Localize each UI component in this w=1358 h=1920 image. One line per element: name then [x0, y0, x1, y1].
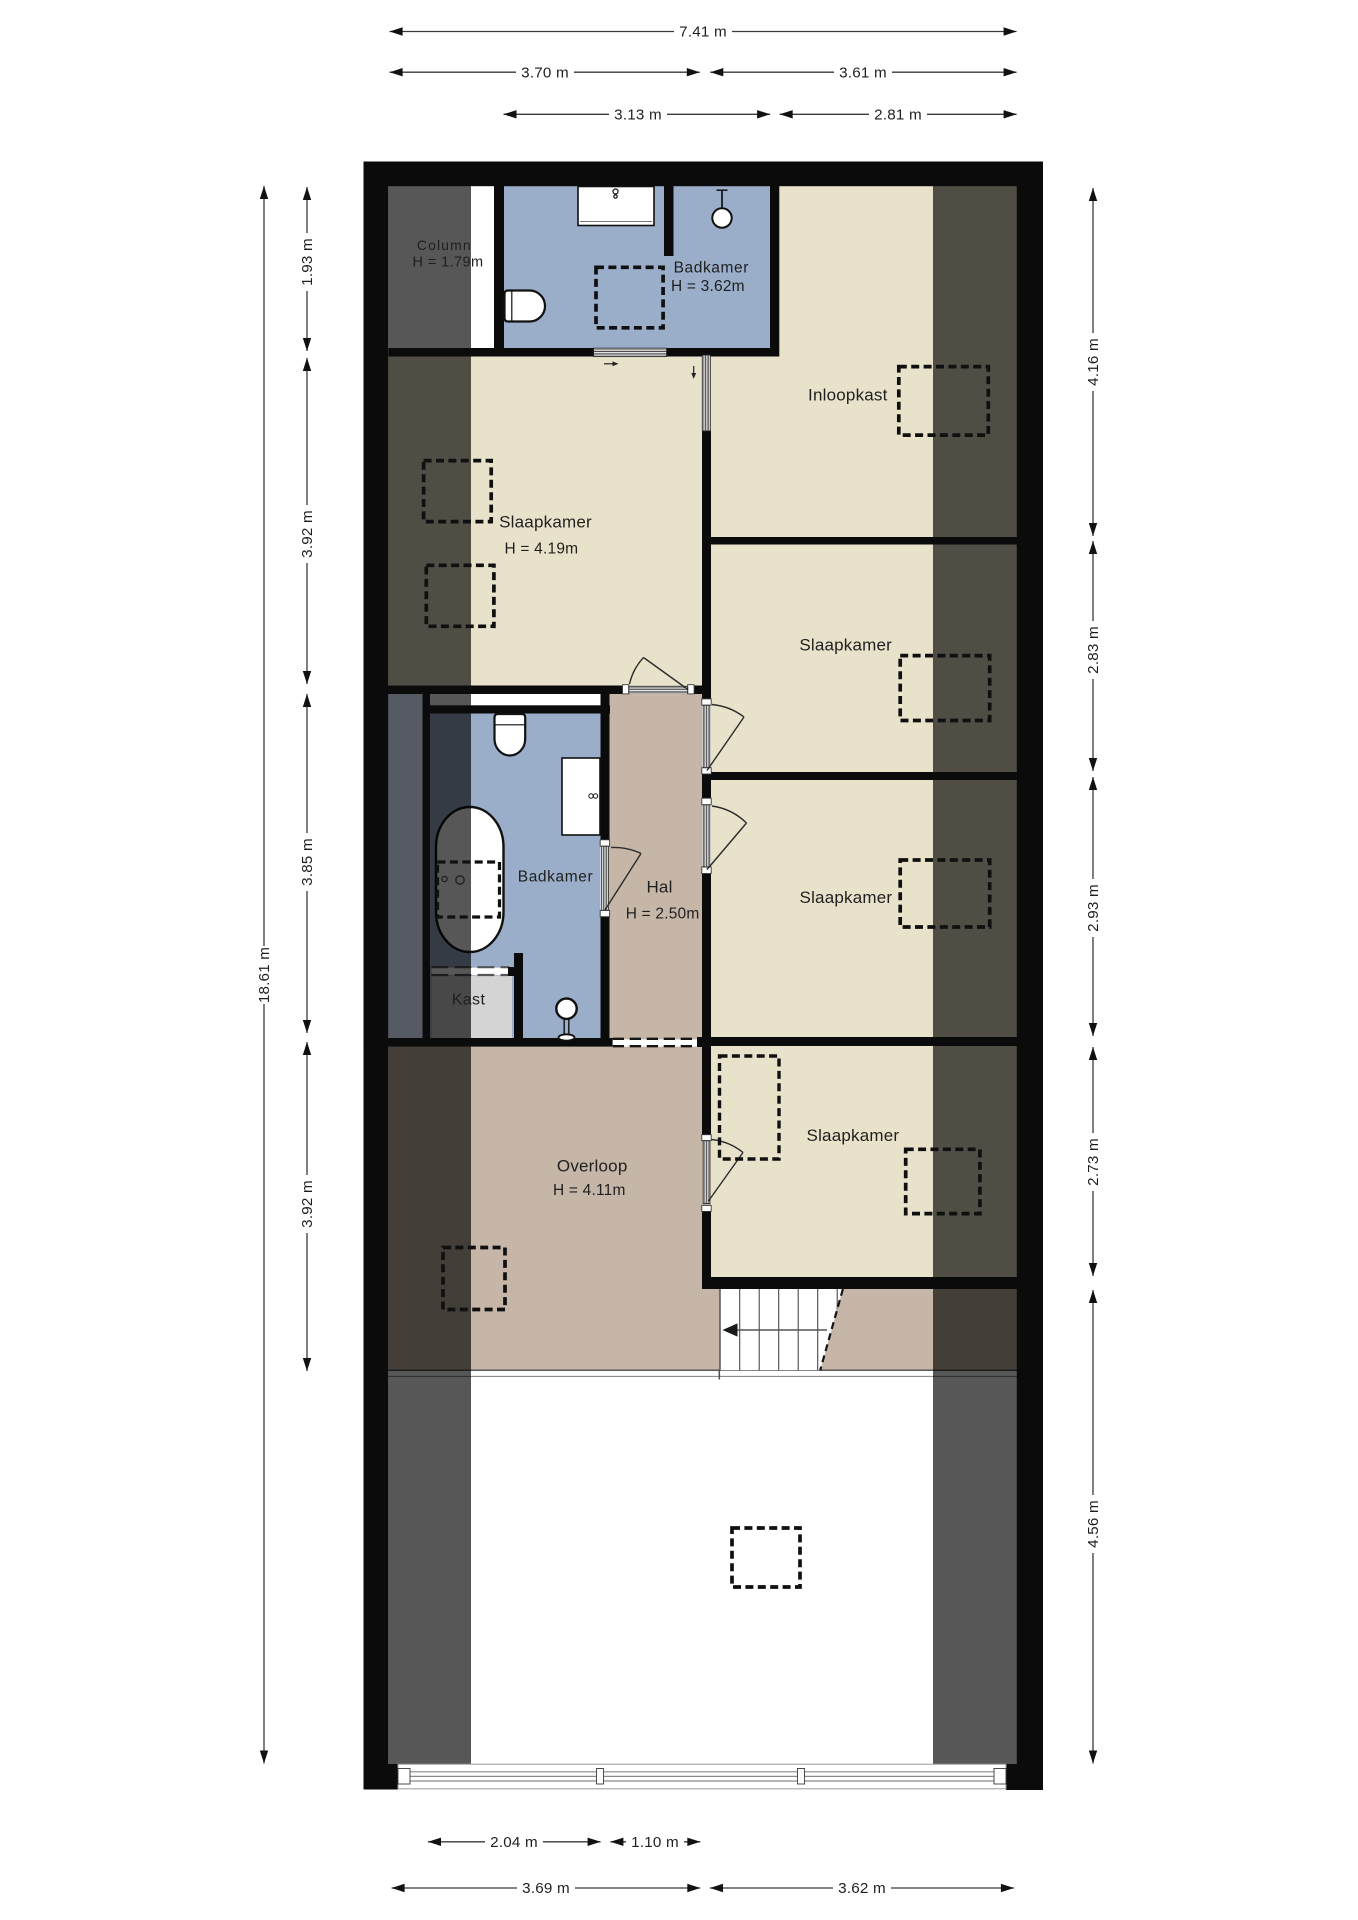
svg-text:Badkamer: Badkamer [674, 260, 749, 277]
svg-text:2.81 m: 2.81 m [874, 107, 922, 124]
svg-text:2.73 m: 2.73 m [1085, 1138, 1102, 1186]
svg-text:3.61 m: 3.61 m [839, 64, 887, 81]
svg-text:3.62 m: 3.62 m [838, 1880, 886, 1897]
svg-text:H = 4.19m: H = 4.19m [505, 541, 579, 558]
svg-text:Slaapkamer: Slaapkamer [807, 1126, 900, 1145]
svg-text:Slaapkamer: Slaapkamer [800, 888, 893, 907]
svg-text:3.85 m: 3.85 m [299, 838, 316, 886]
svg-text:3.70 m: 3.70 m [521, 64, 569, 81]
svg-text:Overloop: Overloop [557, 1157, 628, 1176]
svg-text:3.92 m: 3.92 m [299, 510, 316, 558]
svg-text:Slaapkamer: Slaapkamer [799, 636, 892, 655]
svg-text:H = 2.50m: H = 2.50m [626, 906, 700, 923]
svg-text:3.92 m: 3.92 m [299, 1180, 316, 1228]
svg-text:1.93 m: 1.93 m [299, 238, 316, 286]
svg-text:18.61 m: 18.61 m [256, 947, 273, 1003]
svg-text:2.93 m: 2.93 m [1085, 884, 1102, 932]
svg-text:3.69 m: 3.69 m [522, 1880, 570, 1897]
svg-text:4.16 m: 4.16 m [1085, 338, 1102, 386]
svg-text:H = 3.62m: H = 3.62m [671, 278, 745, 295]
svg-text:Hal: Hal [646, 878, 672, 897]
svg-text:2.83 m: 2.83 m [1085, 626, 1102, 674]
svg-text:H = 1.79m: H = 1.79m [413, 255, 484, 271]
svg-text:Inloopkast: Inloopkast [808, 386, 888, 405]
svg-text:3.13 m: 3.13 m [614, 107, 662, 124]
svg-text:Column: Column [417, 237, 472, 253]
svg-text:2.04 m: 2.04 m [490, 1834, 538, 1851]
svg-text:4.56 m: 4.56 m [1085, 1500, 1102, 1548]
svg-text:1.10 m: 1.10 m [631, 1834, 679, 1851]
svg-text:Kast: Kast [452, 992, 486, 1009]
svg-text:Slaapkamer: Slaapkamer [499, 513, 592, 532]
svg-text:Badkamer: Badkamer [518, 869, 593, 886]
svg-text:7.41 m: 7.41 m [679, 24, 727, 41]
svg-text:H = 4.11m: H = 4.11m [553, 1182, 626, 1199]
